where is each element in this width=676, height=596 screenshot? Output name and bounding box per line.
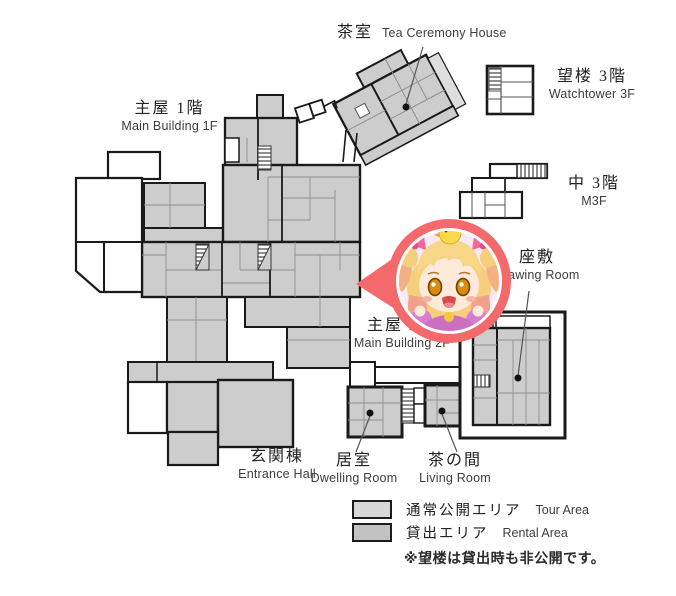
legend-item-rental-area: 貸出エリア Rental Area — [352, 521, 605, 544]
rental-area-label-jp: 貸出エリア — [406, 522, 489, 543]
rental-area-swatch — [352, 523, 392, 542]
entrance-hall-plan — [128, 362, 293, 465]
drawing-room-plan — [460, 312, 565, 438]
main-building-1f-plan — [76, 95, 360, 368]
tea-house-stilt — [343, 130, 346, 162]
watchtower-3f-plan — [487, 66, 533, 114]
legend: 通常公開エリア Tour Area 貸出エリア Rental Area ※望楼は… — [352, 498, 605, 568]
legend-item-tour-area: 通常公開エリア Tour Area — [352, 498, 605, 521]
tour-area-swatch — [352, 500, 392, 519]
m3f-plan — [460, 164, 547, 218]
rental-area-label-en: Rental Area — [503, 526, 568, 540]
tour-area-label-jp: 通常公開エリア — [406, 499, 522, 520]
floorplan-map: 茶室 Tea Ceremony House 望楼 3階 Watchtower 3… — [0, 0, 676, 596]
legend-note: ※望楼は貸出時も非公開です。 — [404, 548, 605, 568]
tour-area-label-en: Tour Area — [536, 503, 590, 517]
tea-house-annex-plan — [295, 96, 338, 123]
tea-ceremony-house-plan — [326, 35, 469, 165]
